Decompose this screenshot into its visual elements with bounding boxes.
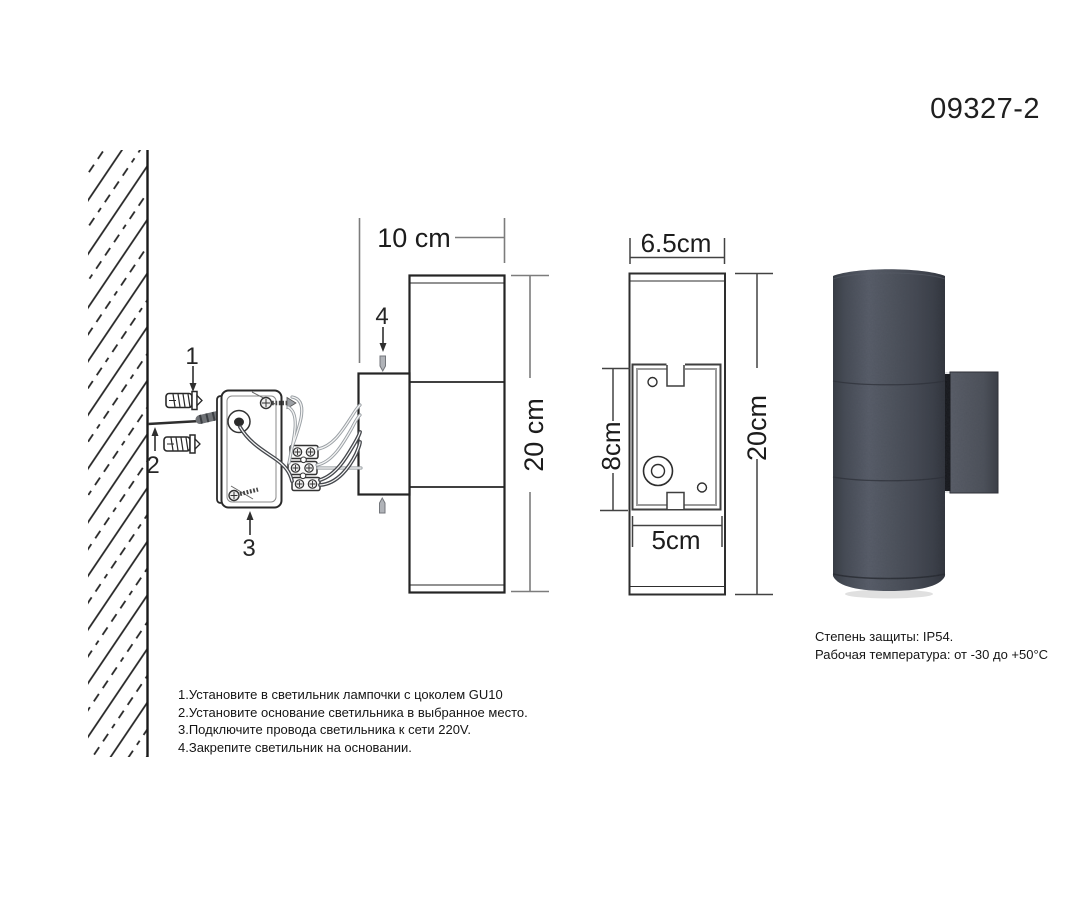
dimension-depth-label: 10 cm [377, 223, 451, 253]
rear-height-label: 20cm [742, 395, 772, 461]
side-view-bracket [359, 374, 410, 495]
installation-instructions: 1.Установите в светильник лампочки с цок… [178, 686, 528, 756]
arrow-down-icon [380, 343, 387, 352]
marker-2-label: 2 [146, 452, 159, 479]
marker-3-label: 3 [242, 535, 255, 562]
instruction-line-4: 4.Закрепите светильник на основании. [178, 739, 528, 757]
diagram-svg: 1 2 3 4 10 cm 20 c [0, 0, 1078, 899]
model-number: 09327-2 [928, 93, 1040, 126]
marker-4: 4 [375, 303, 388, 352]
instruction-line-1: 1.Установите в светильник лампочки с цок… [178, 686, 528, 704]
terminal-block [288, 446, 320, 491]
arrow-up-icon [152, 427, 159, 436]
fixing-screw-icon-bottom [380, 498, 386, 513]
arrow-up-icon [247, 511, 254, 520]
instruction-line-3: 3.Подключите провода светильника к сети … [178, 721, 528, 739]
spec-temperature: Рабочая температура: от -30 до +50°C [815, 646, 1048, 664]
marker-1-label: 1 [185, 343, 198, 370]
installation-sheet: 1 2 3 4 10 cm 20 c [0, 0, 1078, 899]
wall-hatch [88, 150, 148, 757]
marker-3: 3 [242, 511, 255, 562]
product-photo [825, 260, 1005, 600]
mounting-plate [217, 391, 296, 508]
spec-text: Степень защиты: IP54. Рабочая температур… [815, 628, 1048, 663]
instruction-line-2: 2.Установите основание светильника в выб… [178, 704, 528, 722]
wall-anchor-icon-1 [166, 392, 202, 410]
marker-4-label: 4 [375, 303, 388, 330]
wall-anchor-icon-2 [164, 435, 200, 453]
rear-width-label: 6.5cm [641, 228, 712, 258]
arrow-down-icon [190, 383, 197, 392]
dimension-height-label: 20 cm [519, 398, 549, 472]
spec-protection: Степень защиты: IP54. [815, 628, 1048, 646]
rear-plate-width-label: 5cm [651, 525, 700, 555]
marker-1: 1 [185, 343, 198, 392]
rear-plate-height-label: 8cm [596, 421, 626, 470]
fixing-screw-icon-top [380, 356, 386, 371]
